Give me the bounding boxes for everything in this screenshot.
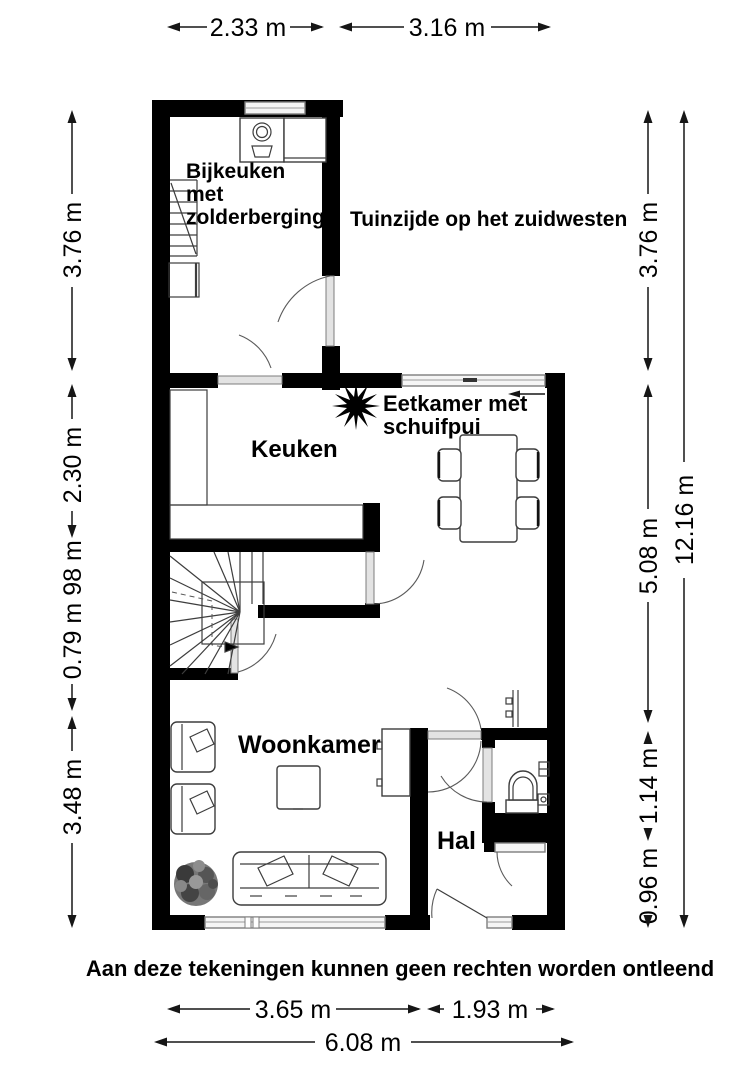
dim-right-1: 3.76 m: [635, 110, 663, 371]
floorplan-drawing: 2.33 m 3.16 m 3.76 m 2.30 m 98 m 0.79 m …: [0, 0, 754, 1067]
dim-label: 0.79 m: [59, 603, 87, 679]
dim-label: 3.16 m: [409, 14, 485, 42]
kitchen-counter: [170, 390, 363, 539]
dim-left-3: 98 m: [59, 540, 87, 596]
room-label-eetkamer-line2: schuifpui: [383, 414, 481, 439]
front-door: [432, 889, 487, 918]
room-label-bijkeuken-line2: met: [186, 183, 223, 206]
dim-label: 3.76 m: [59, 202, 87, 278]
appliance-unit: [284, 118, 326, 162]
door-bijkeuken-side: [278, 276, 334, 346]
room-label-eetkamer-line1: Eetkamer met: [383, 391, 528, 416]
floorplan-page: 2.33 m 3.16 m 3.76 m 2.30 m 98 m 0.79 m …: [0, 0, 754, 1067]
coffee-table: [277, 766, 320, 809]
dim-right-3: 1.14 m: [635, 731, 663, 841]
toilet-icon: [506, 771, 538, 813]
dim-right-2: 5.08 m: [635, 384, 663, 723]
dim-left-5: 3.48 m: [59, 716, 87, 928]
tv-cabinet: [377, 729, 410, 796]
dim-bottom-2: 1.93 m: [427, 996, 555, 1024]
dim-label: 5.08 m: [635, 518, 663, 594]
dim-label: 1.14 m: [635, 748, 663, 824]
dim-bottom-total: 6.08 m: [154, 1029, 574, 1057]
armchair-2: [171, 784, 215, 834]
window-hal-bottom: [487, 917, 512, 928]
dim-label: 98 m: [59, 540, 87, 596]
door-livingroom-hal: [428, 688, 481, 792]
dim-top-1: 2.33 m: [167, 14, 324, 42]
dim-right-4: 0.96 m: [635, 848, 663, 928]
room-label-hal: Hal: [437, 827, 476, 855]
room-label-bijkeuken-line3: zolderberging: [186, 206, 325, 229]
armchair-1: [171, 722, 215, 772]
dim-left-2: 2.30 m: [59, 384, 87, 538]
dim-label: 3.48 m: [59, 759, 87, 835]
washing-machine-icon: [240, 118, 284, 162]
dim-top-2: 3.16 m: [339, 14, 551, 42]
dim-label: 6.08 m: [325, 1029, 401, 1057]
dim-label: 1.93 m: [452, 996, 528, 1024]
radiator-dining: [506, 690, 518, 727]
dim-label: 12.16 m: [671, 475, 699, 565]
dim-left-4: 0.79 m: [59, 603, 87, 711]
dim-label: 2.30 m: [59, 427, 87, 503]
door-bijkeuken-keuken: [218, 335, 282, 384]
disclaimer-text: Aan deze tekeningen kunnen geen rechten …: [86, 956, 714, 981]
door-under-stairs: [231, 619, 276, 673]
stairs-winder-icon: [170, 552, 264, 674]
window-livingroom-bottom: [205, 917, 385, 928]
dim-left-1: 3.76 m: [59, 110, 87, 371]
garden-side-label: Tuinzijde op het zuidwesten: [350, 208, 627, 231]
dining-table: [460, 435, 517, 542]
room-label-bijkeuken-line1: Bijkeuken: [186, 160, 285, 183]
room-label-keuken: Keuken: [251, 436, 338, 463]
plant-icon-living: [174, 860, 218, 906]
dim-right-total: 12.16 m: [671, 110, 699, 928]
dim-label: 3.76 m: [635, 202, 663, 278]
dim-label: 3.65 m: [255, 996, 331, 1024]
door-stairhall-livingroom: [366, 552, 424, 604]
sofa: [233, 852, 386, 905]
dim-label: 2.33 m: [210, 14, 286, 42]
window-bijkeuken-top: [245, 102, 305, 114]
dim-label: 0.96 m: [635, 848, 663, 924]
room-label-woonkamer: Woonkamer: [238, 731, 381, 759]
dim-bottom-1: 3.65 m: [167, 996, 421, 1024]
door-meter-cupboard: [495, 843, 545, 886]
